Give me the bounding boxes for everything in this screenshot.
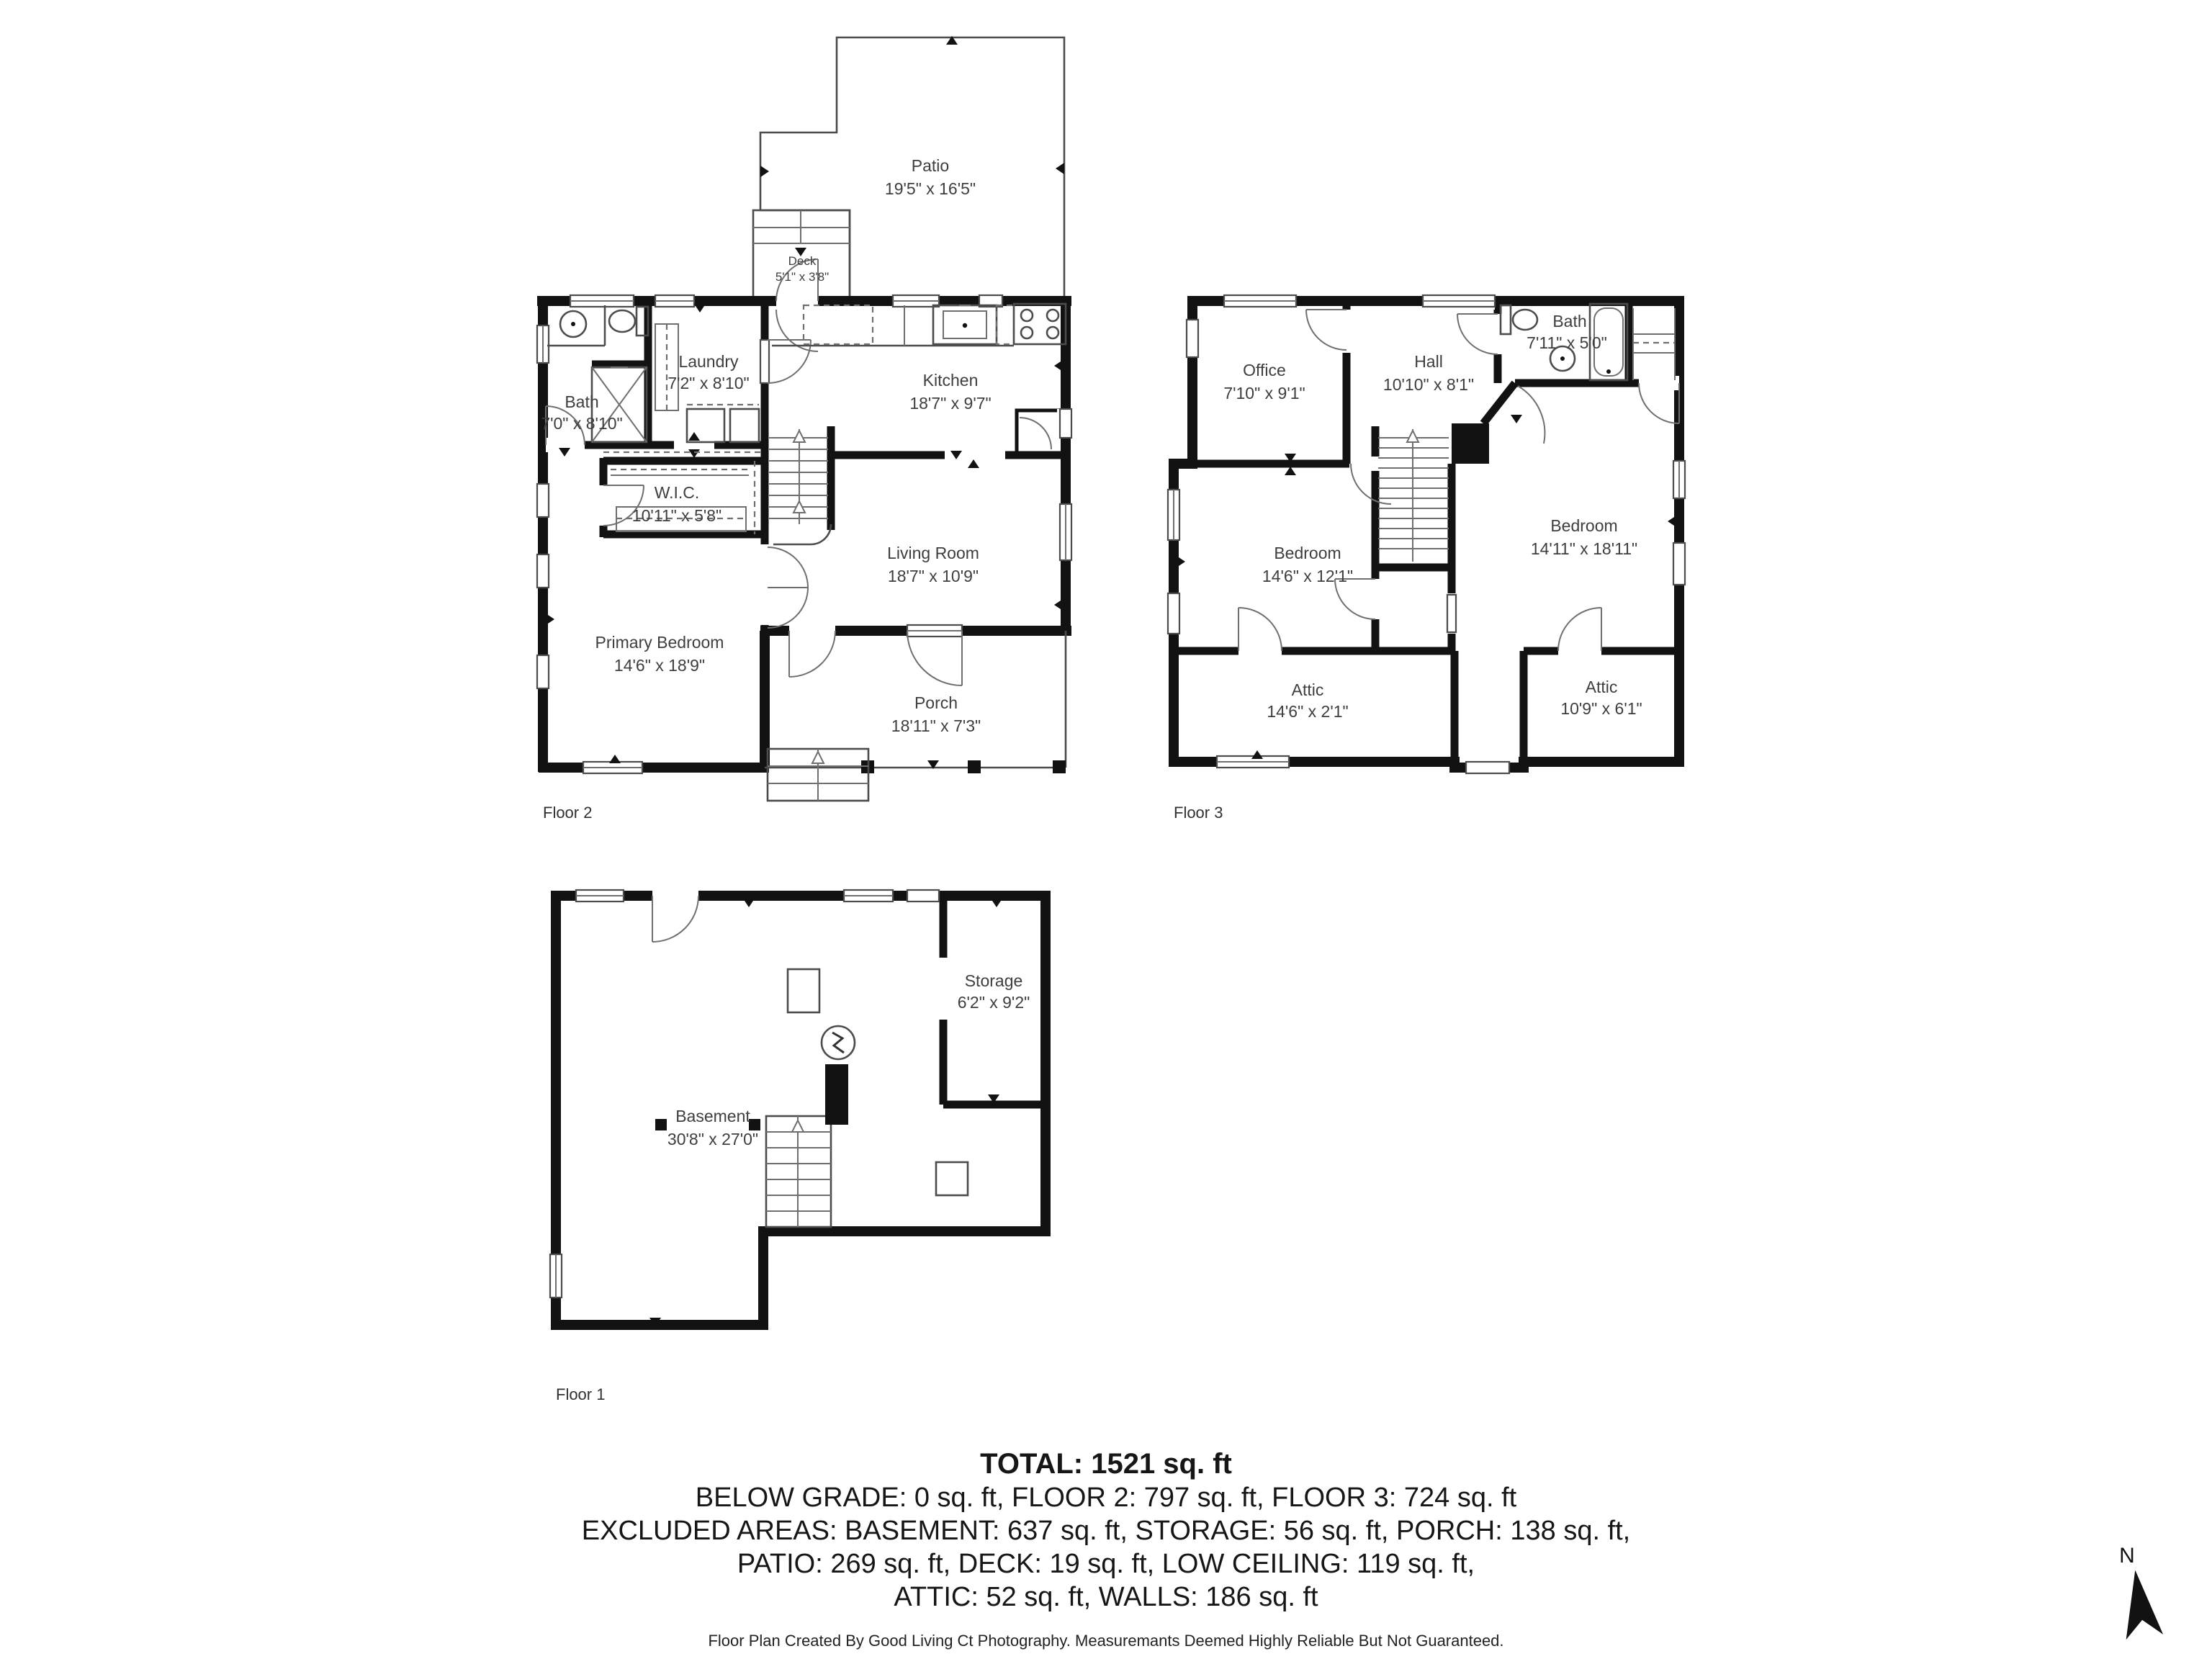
summary-line-3: EXCLUDED AREAS: BASEMENT: 637 sq. ft, ST…: [0, 1515, 2212, 1548]
summary-line-2: BELOW GRADE: 0 sq. ft, FLOOR 2: 797 sq. …: [0, 1482, 2212, 1515]
room-label-bedroom-right: Bedroom: [1550, 516, 1617, 535]
room-dims-living: 18'7" x 10'9": [888, 567, 979, 585]
summary-line-5: ATTIC: 52 sq. ft, WALLS: 186 sq. ft: [0, 1581, 2212, 1614]
room-dims-attic-right: 10'9" x 6'1": [1560, 699, 1642, 718]
summary-line-4: PATIO: 269 sq. ft, DECK: 19 sq. ft, LOW …: [0, 1548, 2212, 1581]
floor3-stairs: [1378, 429, 1449, 562]
floor3-closet-detail: [1633, 308, 1675, 380]
room-label-living: Living Room: [887, 544, 979, 562]
room-dims-bedroom-left: 14'6" x 12'1": [1262, 567, 1353, 585]
room-label-storage: Storage: [965, 971, 1023, 990]
disclaimer-text: Floor Plan Created By Good Living Ct Pho…: [0, 1633, 2212, 1650]
room-dims-kitchen: 18'7" x 9'7": [909, 394, 991, 413]
room-label-wic: W.I.C.: [655, 483, 700, 502]
room-dims-office: 7'10" x 9'1": [1223, 384, 1305, 403]
room-dims-deck: 5'1" x 3'8": [775, 270, 829, 284]
room-label-attic-left: Attic: [1292, 680, 1324, 699]
floor1-doors: [652, 889, 950, 1020]
room-dims-primary: 14'6" x 18'9": [614, 656, 705, 675]
room-label-attic-right: Attic: [1586, 678, 1618, 696]
room-dims-attic-left: 14'6" x 2'1": [1267, 702, 1348, 721]
room-label-primary: Primary Bedroom: [595, 633, 724, 652]
floor2-label: Floor 2: [543, 804, 592, 822]
room-dims-patio: 19'5" x 16'5": [885, 179, 976, 198]
room-label-office: Office: [1243, 361, 1286, 379]
room-label-bedroom-left: Bedroom: [1274, 544, 1341, 562]
room-label-bath2: Bath: [565, 392, 598, 411]
floor3-label: Floor 3: [1174, 804, 1223, 822]
room-label-patio: Patio: [912, 156, 949, 175]
floor3-plan: Office 7'10" x 9'1" Hall 10'10" x 8'1" B…: [1165, 292, 1688, 822]
room-label-laundry: Laundry: [678, 352, 739, 371]
room-dims-bedroom-right: 14'11" x 18'11": [1531, 539, 1637, 558]
room-dims-porch: 18'11" x 7'3": [891, 716, 981, 735]
room-label-kitchen: Kitchen: [923, 371, 979, 390]
floor1-plan: Basement 30'8" x 27'0" Storage 6'2" x 9'…: [547, 887, 1046, 1403]
floor1-fixtures: [655, 969, 968, 1195]
room-dims-basement: 30'8" x 27'0": [667, 1130, 758, 1148]
room-label-porch: Porch: [914, 693, 958, 712]
summary-total: TOTAL: 1521 sq. ft: [0, 1449, 2212, 1482]
floor3-doors: [1238, 310, 1679, 658]
room-dims-bath2: 7'0" x 8'10": [541, 414, 622, 433]
room-dims-bath3: 7'11" x 5'0": [1527, 333, 1607, 352]
room-dims-laundry: 7'2" x 8'10": [667, 374, 749, 392]
room-dims-hall: 10'10" x 8'1": [1383, 375, 1474, 394]
room-label-basement: Basement: [675, 1107, 750, 1125]
room-label-bath3: Bath: [1552, 312, 1586, 331]
room-dims-wic: 10'11" x 5'8": [632, 506, 721, 525]
floor1-stairs: [766, 1116, 831, 1227]
room-dims-storage: 6'2" x 9'2": [958, 993, 1030, 1012]
room-label-deck: Deck: [788, 254, 817, 268]
floor1-outline: [556, 896, 1046, 1325]
floorplan-drawing: Patio 19'5" x 16'5" Deck 5'1" x 3'8" Bat…: [0, 0, 2212, 1659]
room-label-hall: Hall: [1414, 352, 1443, 371]
area-summary: TOTAL: 1521 sq. ft BELOW GRADE: 0 sq. ft…: [0, 1449, 2212, 1614]
floor2-plan: Patio 19'5" x 16'5" Deck 5'1" x 3'8" Bat…: [534, 36, 1074, 822]
floor1-label: Floor 1: [556, 1385, 605, 1403]
floorplan-page: Patio 19'5" x 16'5" Deck 5'1" x 3'8" Bat…: [0, 0, 2212, 1659]
